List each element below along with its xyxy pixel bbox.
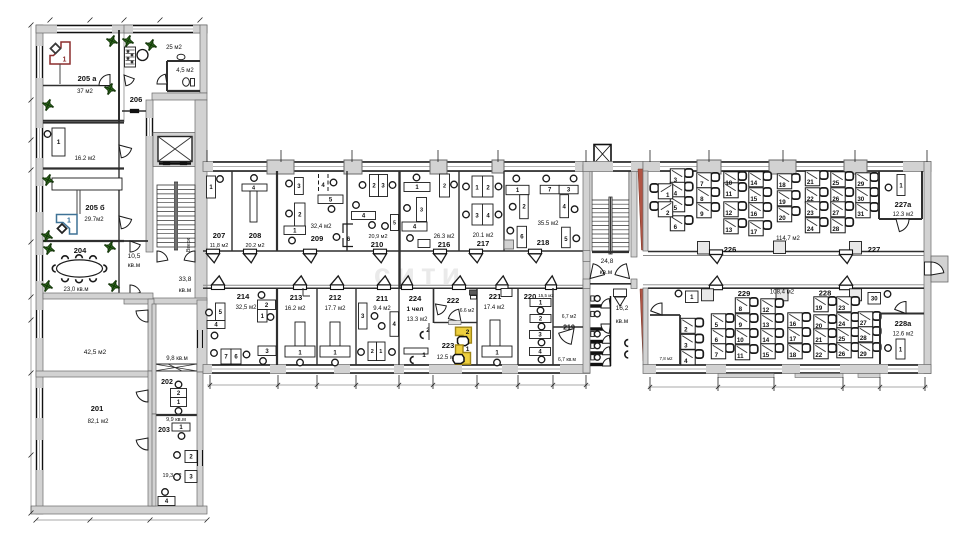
svg-text:228: 228 — [819, 289, 832, 298]
svg-text:Вверх: Вверх — [186, 238, 192, 252]
svg-text:26: 26 — [838, 351, 845, 358]
svg-text:227: 227 — [868, 245, 881, 254]
svg-text:12: 12 — [762, 307, 769, 314]
svg-text:21: 21 — [815, 337, 822, 344]
svg-text:12: 12 — [725, 210, 732, 217]
svg-text:201: 201 — [91, 404, 104, 413]
svg-text:17: 17 — [750, 229, 757, 236]
svg-text:209: 209 — [311, 234, 324, 243]
svg-text:4: 4 — [674, 191, 678, 198]
svg-text:222: 222 — [447, 296, 460, 305]
svg-text:5: 5 — [393, 220, 396, 226]
svg-text:223: 223 — [442, 341, 455, 350]
svg-text:114,7 м2: 114,7 м2 — [776, 236, 800, 242]
svg-text:кв.м: кв.м — [128, 262, 141, 269]
svg-text:11: 11 — [737, 353, 744, 360]
svg-text:18: 18 — [779, 182, 786, 189]
svg-text:16.2 м2: 16.2 м2 — [285, 306, 306, 312]
svg-text:5: 5 — [715, 322, 719, 329]
svg-text:кв.м: кв.м — [600, 269, 613, 276]
svg-text:1: 1 — [63, 57, 67, 64]
svg-text:82,1 м2: 82,1 м2 — [88, 419, 109, 425]
svg-text:217: 217 — [477, 239, 490, 248]
svg-text:5: 5 — [674, 205, 678, 212]
svg-text:29.7м2: 29.7м2 — [84, 217, 104, 223]
svg-text:3: 3 — [684, 343, 688, 350]
svg-text:18: 18 — [789, 352, 796, 359]
svg-text:7,8 м2: 7,8 м2 — [659, 356, 673, 361]
svg-text:12.6 м2: 12.6 м2 — [893, 332, 914, 338]
svg-text:13: 13 — [762, 322, 769, 329]
svg-text:3: 3 — [674, 177, 678, 184]
svg-text:228а: 228а — [895, 319, 913, 328]
svg-text:6: 6 — [674, 224, 678, 231]
svg-text:9.4 м2: 9.4 м2 — [373, 306, 391, 312]
svg-text:32,4 м2: 32,4 м2 — [311, 224, 332, 230]
svg-text:214: 214 — [237, 292, 250, 301]
svg-text:16: 16 — [750, 211, 757, 218]
svg-text:1: 1 — [379, 349, 382, 355]
svg-text:13: 13 — [725, 227, 732, 234]
svg-text:1: 1 — [422, 352, 426, 359]
svg-text:14: 14 — [750, 180, 757, 187]
svg-text:9: 9 — [700, 211, 704, 218]
svg-text:205 б: 205 б — [85, 203, 105, 212]
svg-text:25: 25 — [832, 180, 839, 187]
svg-text:3: 3 — [420, 207, 423, 213]
svg-text:2: 2 — [666, 210, 670, 217]
svg-text:211: 211 — [376, 294, 388, 303]
svg-text:11,8 м2: 11,8 м2 — [210, 243, 229, 249]
svg-text:6.6 м2: 6.6 м2 — [460, 308, 475, 314]
svg-text:20: 20 — [779, 215, 786, 222]
svg-text:1 чел: 1 чел — [407, 306, 424, 313]
svg-text:9,9 кв.м: 9,9 кв.м — [166, 417, 186, 423]
svg-text:19: 19 — [779, 199, 786, 206]
svg-text:2: 2 — [684, 327, 688, 334]
svg-text:204: 204 — [74, 246, 87, 255]
svg-text:9: 9 — [739, 322, 743, 329]
svg-text:28: 28 — [860, 335, 867, 342]
svg-text:30: 30 — [857, 196, 864, 203]
svg-text:23: 23 — [838, 305, 845, 312]
svg-text:22: 22 — [815, 352, 822, 359]
svg-text:4,5 м2: 4,5 м2 — [176, 68, 194, 74]
svg-text:9,8 кв.м: 9,8 кв.м — [166, 356, 188, 362]
svg-text:33,8: 33,8 — [179, 276, 192, 283]
svg-text:20,9 м2: 20,9 м2 — [368, 234, 387, 240]
svg-text:208: 208 — [249, 231, 262, 240]
svg-text:23,0 кв.м: 23,0 кв.м — [64, 287, 89, 293]
svg-text:210: 210 — [371, 240, 384, 249]
svg-text:кв.м: кв.м — [616, 318, 629, 325]
svg-text:11: 11 — [726, 191, 733, 198]
svg-text:24: 24 — [807, 226, 814, 233]
svg-text:42,5 м2: 42,5 м2 — [84, 349, 107, 356]
svg-text:25: 25 — [838, 336, 845, 343]
svg-text:2: 2 — [426, 327, 430, 334]
svg-text:25 м2: 25 м2 — [166, 45, 182, 51]
svg-text:8: 8 — [700, 196, 704, 203]
svg-text:35.5 м2: 35.5 м2 — [538, 221, 559, 227]
svg-text:28: 28 — [832, 226, 839, 233]
svg-text:29: 29 — [860, 351, 867, 358]
svg-text:12.3 м2: 12.3 м2 — [893, 212, 914, 218]
svg-text:21: 21 — [807, 179, 814, 186]
svg-text:23: 23 — [807, 210, 814, 217]
svg-text:31: 31 — [857, 211, 864, 218]
svg-text:15: 15 — [750, 196, 757, 203]
svg-text:205 а: 205 а — [78, 74, 98, 83]
svg-text:16,2: 16,2 — [616, 305, 629, 312]
svg-text:226: 226 — [724, 245, 737, 254]
svg-text:16: 16 — [789, 321, 796, 328]
svg-text:10,5: 10,5 — [128, 253, 141, 260]
svg-text:30: 30 — [871, 296, 878, 302]
svg-text:1: 1 — [466, 346, 470, 353]
svg-text:4: 4 — [684, 358, 688, 365]
svg-text:20: 20 — [815, 323, 822, 330]
svg-text:22: 22 — [807, 196, 814, 203]
svg-text:16.2 м2: 16.2 м2 — [75, 156, 96, 162]
svg-text:1: 1 — [666, 192, 670, 199]
svg-text:6,7 кв.м: 6,7 кв.м — [558, 357, 577, 363]
svg-text:32,5 м2: 32,5 м2 — [236, 305, 257, 311]
svg-text:1: 1 — [67, 218, 71, 225]
svg-text:2: 2 — [371, 349, 374, 355]
svg-text:15,5 м2: 15,5 м2 — [538, 293, 554, 298]
svg-text:10: 10 — [737, 337, 744, 344]
svg-text:206: 206 — [130, 95, 143, 104]
svg-text:227а: 227а — [895, 200, 913, 209]
svg-text:19: 19 — [815, 305, 822, 312]
svg-text:24,8: 24,8 — [601, 258, 614, 265]
svg-text:207: 207 — [213, 231, 226, 240]
svg-text:202: 202 — [161, 379, 173, 386]
svg-text:7: 7 — [700, 181, 704, 188]
svg-text:17.4 м2: 17.4 м2 — [484, 305, 505, 311]
svg-text:2: 2 — [443, 183, 446, 189]
svg-text:221: 221 — [489, 292, 502, 301]
svg-text:29: 29 — [857, 181, 864, 188]
svg-text:27: 27 — [860, 320, 867, 327]
svg-text:24: 24 — [838, 321, 845, 328]
svg-text:2: 2 — [466, 329, 470, 336]
svg-text:218: 218 — [537, 238, 550, 247]
svg-text:17.7 м2: 17.7 м2 — [325, 306, 346, 312]
svg-text:кв.м: кв.м — [179, 287, 192, 294]
svg-text:20.2 м2: 20.2 м2 — [245, 243, 264, 249]
svg-text:224: 224 — [409, 294, 422, 303]
svg-text:14: 14 — [762, 337, 769, 344]
svg-text:6: 6 — [715, 337, 719, 344]
svg-text:7: 7 — [715, 352, 719, 359]
svg-text:26: 26 — [832, 196, 839, 203]
svg-text:8: 8 — [739, 306, 743, 313]
svg-text:37 м2: 37 м2 — [77, 89, 93, 95]
svg-text:17: 17 — [789, 336, 796, 343]
svg-text:27: 27 — [832, 210, 839, 217]
svg-text:15: 15 — [762, 352, 769, 359]
svg-text:1: 1 — [57, 139, 61, 146]
svg-text:203: 203 — [158, 427, 170, 434]
svg-text:6,7 м2: 6,7 м2 — [562, 314, 577, 320]
svg-text:13.3 м2: 13.3 м2 — [407, 317, 428, 323]
svg-text:216: 216 — [438, 240, 451, 249]
svg-text:212: 212 — [329, 293, 342, 302]
svg-text:108,4 м2: 108,4 м2 — [770, 290, 795, 296]
svg-text:229: 229 — [738, 289, 751, 298]
svg-text:213: 213 — [290, 293, 303, 302]
svg-text:10: 10 — [725, 180, 732, 187]
